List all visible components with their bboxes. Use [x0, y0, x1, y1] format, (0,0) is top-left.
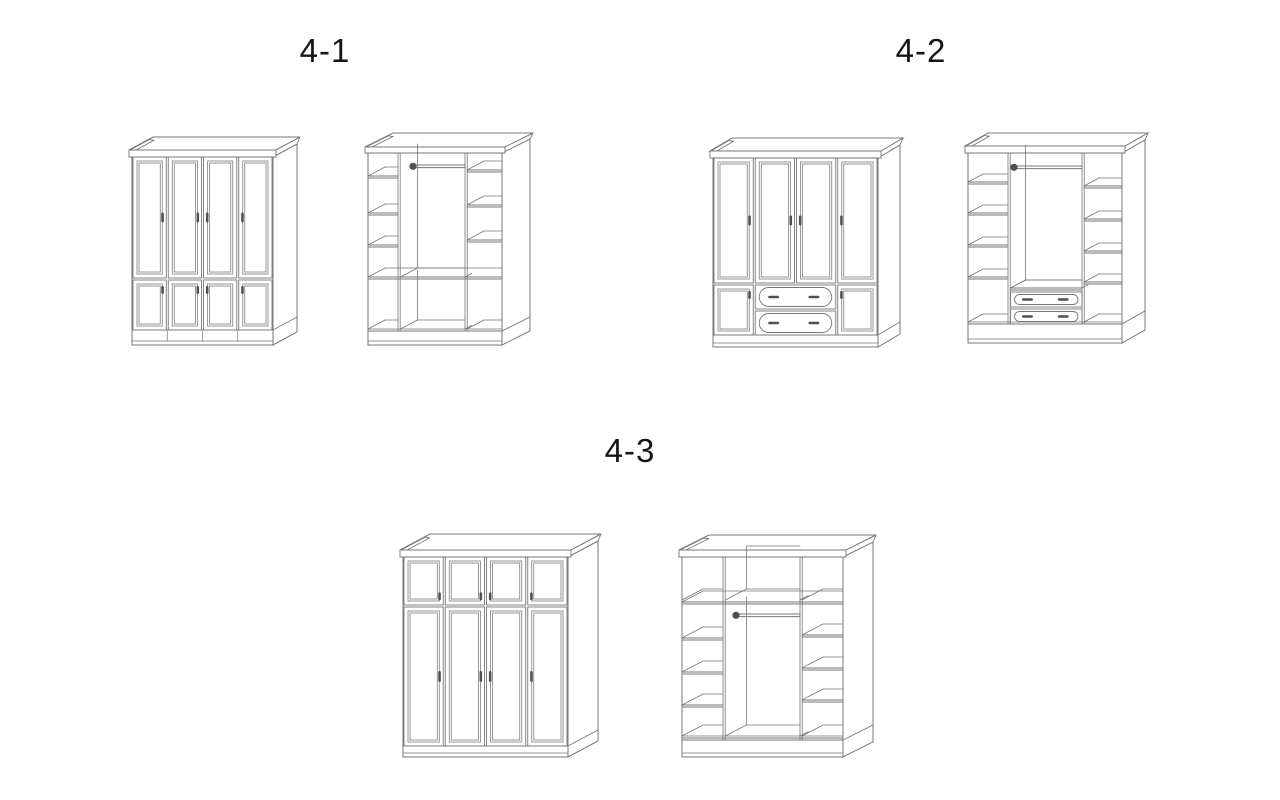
figure-label-4-1: 4-1: [300, 32, 351, 70]
figure-label-4-3: 4-3: [605, 432, 656, 470]
wardrobe-4-3-closed-illustration: [396, 528, 608, 760]
diagram-canvas: 4-1 4-2 4-3: [0, 0, 1280, 800]
wardrobe-4-3-interior-illustration: [668, 530, 878, 762]
figure-label-4-2: 4-2: [896, 32, 947, 70]
wardrobe-4-2-closed-illustration: [703, 130, 903, 352]
wardrobe-4-2-interior-illustration: [958, 126, 1150, 352]
wardrobe-4-1-closed-illustration: [122, 128, 304, 350]
wardrobe-4-1-interior-illustration: [353, 126, 538, 350]
